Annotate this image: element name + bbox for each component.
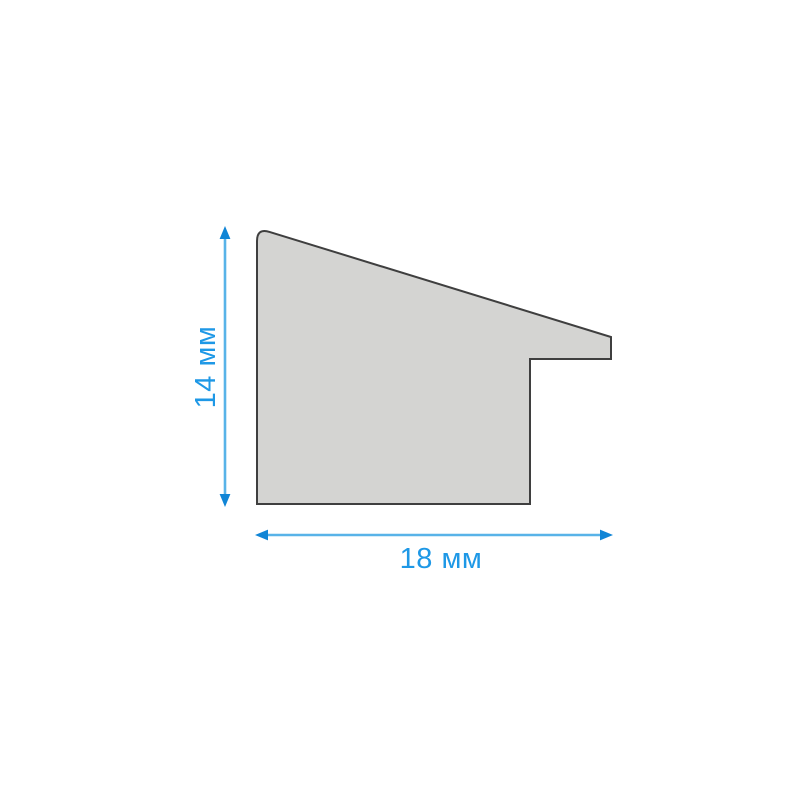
profile-diagram: 14 мм 18 мм — [0, 0, 800, 800]
width-arrow-right-icon — [600, 530, 613, 541]
height-arrow-down-icon — [220, 494, 231, 507]
height-arrow-up-icon — [220, 226, 231, 239]
width-dimension-label: 18 мм — [400, 543, 483, 575]
height-dimension-label: 14 мм — [190, 326, 222, 409]
width-arrow-left-icon — [255, 530, 268, 541]
width-dimension: 18 мм — [255, 530, 613, 575]
height-dimension: 14 мм — [190, 226, 230, 507]
moulding-profile-shape — [257, 231, 611, 504]
diagram-canvas: 14 мм 18 мм — [0, 0, 800, 800]
